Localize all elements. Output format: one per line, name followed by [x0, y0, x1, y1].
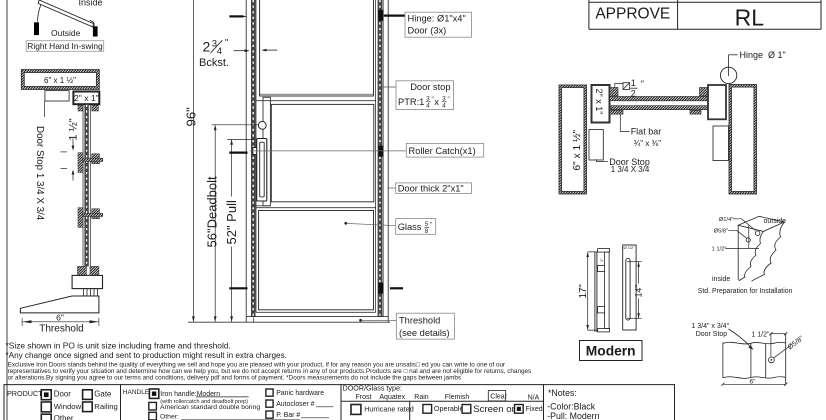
- svg-text:x: x: [434, 97, 439, 107]
- svg-text:outside: outside: [764, 218, 787, 225]
- svg-text:Door (3x): Door (3x): [408, 26, 447, 36]
- svg-text:1 3/4 X 3/4: 1 3/4 X 3/4: [611, 165, 650, 174]
- svg-text:Other: Other: [54, 414, 74, 420]
- svg-text:14": 14": [633, 285, 643, 298]
- svg-text:*Notes:: *Notes:: [548, 388, 577, 398]
- svg-text:Flat bar: Flat bar: [631, 127, 662, 137]
- svg-text:1: 1: [631, 78, 636, 88]
- svg-text:APPROVE: APPROVE: [595, 6, 670, 23]
- svg-text:Door Stop: Door Stop: [696, 331, 728, 338]
- svg-text:Clear: Clear: [490, 394, 507, 401]
- svg-text:8: 8: [425, 228, 429, 235]
- svg-text:1 1/2": 1 1/2": [751, 332, 770, 339]
- svg-text:6": 6": [750, 379, 757, 386]
- svg-text:PTR:1: PTR:1: [398, 97, 424, 107]
- svg-text:Window: Window: [54, 402, 82, 411]
- svg-text:Std. Preparation for Installat: Std. Preparation for Installation: [698, 288, 793, 295]
- svg-text:Door stop: Door stop: [410, 82, 450, 92]
- svg-text:*Size shown in PO is unit size: *Size shown in PO is unit size including…: [6, 340, 231, 350]
- svg-text:": ": [448, 96, 450, 103]
- svg-text:2" x 1": 2" x 1": [74, 93, 99, 103]
- svg-text:HANDLE: HANDLE: [123, 389, 150, 396]
- svg-text:Roller Catch(x1): Roller Catch(x1): [409, 146, 476, 156]
- svg-text:Ø 1/2": Ø 1/2": [624, 245, 636, 250]
- svg-text:Bckst.: Bckst.: [199, 57, 229, 69]
- svg-text:Screen or: Screen or: [473, 404, 515, 415]
- svg-text:RL: RL: [735, 4, 765, 30]
- svg-text:Door: Door: [54, 390, 71, 399]
- svg-text:96": 96": [183, 107, 198, 127]
- svg-text:-Color:Black: -Color:Black: [547, 401, 596, 411]
- svg-text:56"Deadbolt: 56"Deadbolt: [205, 176, 220, 248]
- svg-text:": ": [225, 38, 228, 49]
- svg-text:Rain: Rain: [414, 394, 429, 401]
- svg-text:1 1/2": 1 1/2": [712, 247, 727, 253]
- svg-text:17": 17": [578, 284, 589, 299]
- svg-text:1 ½": 1 ½": [67, 118, 79, 140]
- svg-text:¾" x ⅜": ¾" x ⅜": [634, 139, 662, 148]
- svg-text:4: 4: [217, 46, 222, 57]
- svg-text:2" x 1": 2" x 1": [594, 89, 604, 115]
- svg-text:*Any change once signed and se: *Any change once signed and sent to prod…: [6, 351, 287, 360]
- svg-text:6" x 1 ½": 6" x 1 ½": [572, 129, 583, 170]
- svg-text:-Pull: Modern: -Pull: Modern: [547, 411, 599, 420]
- svg-text:Outside: Outside: [51, 28, 81, 38]
- svg-text:(see details): (see details): [399, 328, 450, 338]
- svg-text:Autocloser #: Autocloser #: [276, 401, 314, 408]
- svg-text:Hinge Ø 1": Hinge Ø 1": [740, 50, 786, 60]
- svg-text:1": 1": [599, 258, 604, 262]
- svg-text:Threshold: Threshold: [39, 324, 83, 335]
- svg-text:6" x 1 ½": 6" x 1 ½": [44, 76, 76, 85]
- svg-text:Glass: Glass: [398, 222, 422, 232]
- svg-text:Hinge: Ø1"x4": Hinge: Ø1"x4": [408, 14, 466, 24]
- svg-text:Hurricane rated: Hurricane rated: [364, 405, 414, 414]
- svg-text:Flemish: Flemish: [445, 394, 470, 401]
- svg-text:inside: inside: [712, 276, 730, 283]
- svg-text:Inside: Inside: [79, 0, 103, 7]
- svg-text:Aquatex: Aquatex: [379, 394, 405, 401]
- svg-text:N/A: N/A: [528, 394, 540, 401]
- svg-text:Frost: Frost: [356, 394, 372, 401]
- svg-text:Fixed: Fixed: [526, 406, 543, 413]
- svg-text:Door thick 2"x1": Door thick 2"x1": [398, 184, 464, 194]
- svg-text:Operable: Operable: [434, 404, 464, 413]
- svg-text:4: 4: [426, 103, 430, 110]
- svg-text:Ø5/8": Ø5/8": [787, 335, 806, 352]
- svg-text:Modern: Modern: [586, 343, 636, 358]
- svg-text:DOOR/Glass type:: DOOR/Glass type:: [343, 384, 403, 393]
- svg-text:Railing: Railing: [94, 402, 118, 411]
- svg-text:or alterations.By signing you: or alterations.By signing you agree to o…: [8, 375, 461, 382]
- svg-text:2: 2: [203, 39, 211, 55]
- svg-text:Threshold: Threshold: [399, 316, 440, 326]
- svg-text:Ø5/8": Ø5/8": [714, 228, 729, 234]
- svg-text:": ": [641, 79, 644, 89]
- svg-text:Right Hand In-swing: Right Hand In-swing: [27, 41, 103, 51]
- svg-text:P. Bar #: P. Bar #: [276, 412, 300, 419]
- svg-text:PRODUCT:: PRODUCT:: [7, 389, 44, 398]
- svg-text:Door Stop 1 3/4 X 3/4: Door Stop 1 3/4 X 3/4: [34, 126, 45, 221]
- svg-text:2: 2: [631, 89, 636, 99]
- svg-text:Gate: Gate: [94, 390, 112, 399]
- svg-text:1 3/4" x 3/4": 1 3/4" x 3/4": [691, 323, 729, 330]
- svg-text:Panic hardware: Panic hardware: [276, 390, 324, 397]
- svg-text:American standard double borin: American standard double boring: [160, 404, 260, 411]
- svg-text:": ": [430, 222, 432, 229]
- svg-text:52" Pull: 52" Pull: [224, 200, 239, 244]
- svg-text:Ø1/4": Ø1/4": [719, 217, 734, 223]
- svg-text:Other:: Other:: [160, 414, 179, 420]
- svg-text:6": 6": [56, 313, 64, 323]
- svg-text:4: 4: [442, 103, 446, 110]
